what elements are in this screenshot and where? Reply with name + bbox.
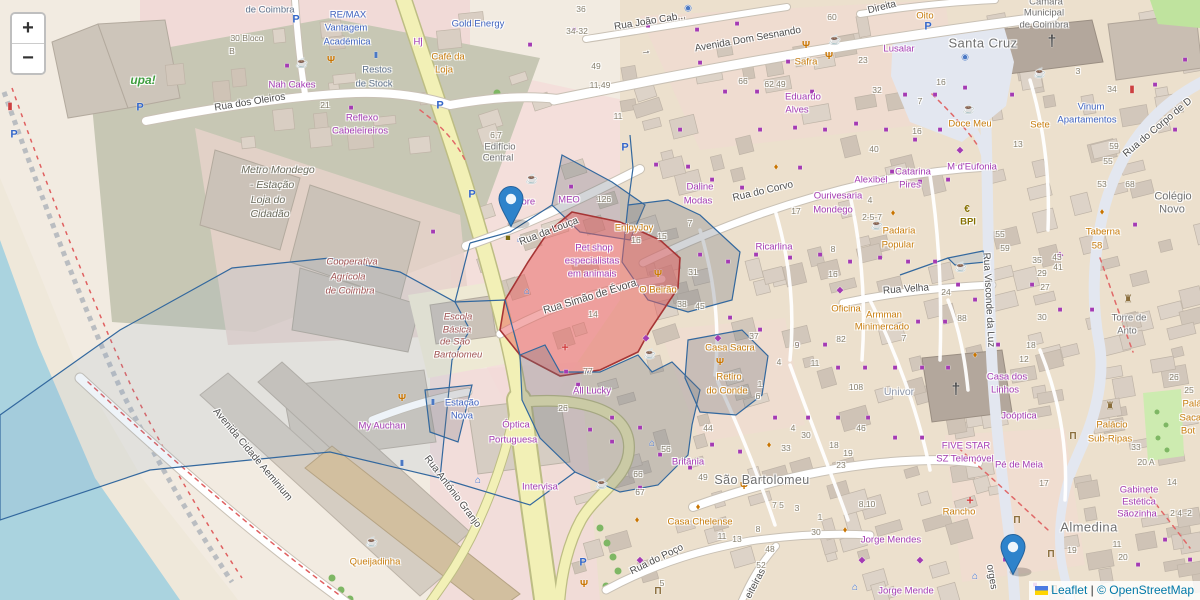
zoom-out-button[interactable]: − <box>12 43 44 73</box>
ukraine-flag-icon <box>1035 586 1048 595</box>
map-canvas[interactable]: PPPPPPPP☕☕☕☕☕☕☕☕☕☕♦♦♦♦♦♦♦♦ΨΨΨΨΨΨΨΨ■■■■■■… <box>0 0 1200 600</box>
map-marker-2[interactable] <box>1001 535 1032 577</box>
zoom-in-button[interactable]: + <box>12 14 44 43</box>
attribution-separator: | <box>1087 583 1097 597</box>
openstreetmap-link[interactable]: © OpenStreetMap <box>1097 583 1194 597</box>
map-marker-1[interactable] <box>499 187 530 229</box>
attribution: Leaflet | © OpenStreetMap <box>1029 581 1200 600</box>
markers-layer <box>0 0 1200 600</box>
zoom-control: + − <box>10 12 46 75</box>
leaflet-link[interactable]: Leaflet <box>1051 583 1087 597</box>
